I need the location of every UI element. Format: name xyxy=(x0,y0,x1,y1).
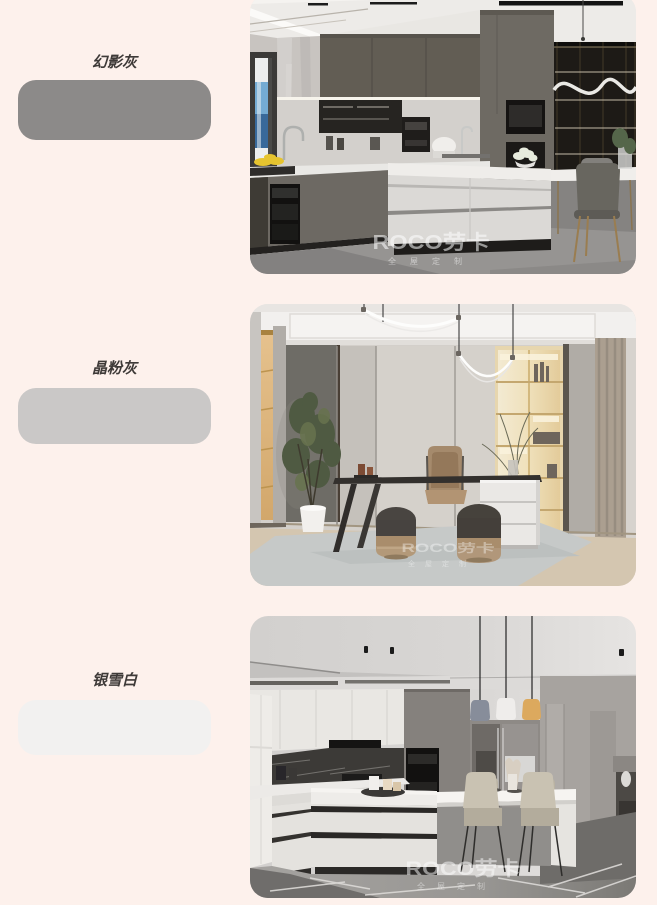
svg-text:全屋定制: 全屋定制 xyxy=(417,881,497,891)
svg-text:全屋定制: 全屋定制 xyxy=(388,256,476,266)
svg-text:ROCO劳卡: ROCO劳卡 xyxy=(406,857,521,880)
svg-text:ROCO劳卡: ROCO劳卡 xyxy=(402,541,496,555)
svg-text:全屋定制: 全屋定制 xyxy=(408,559,476,568)
svg-text:ROCO劳卡: ROCO劳卡 xyxy=(373,231,490,254)
